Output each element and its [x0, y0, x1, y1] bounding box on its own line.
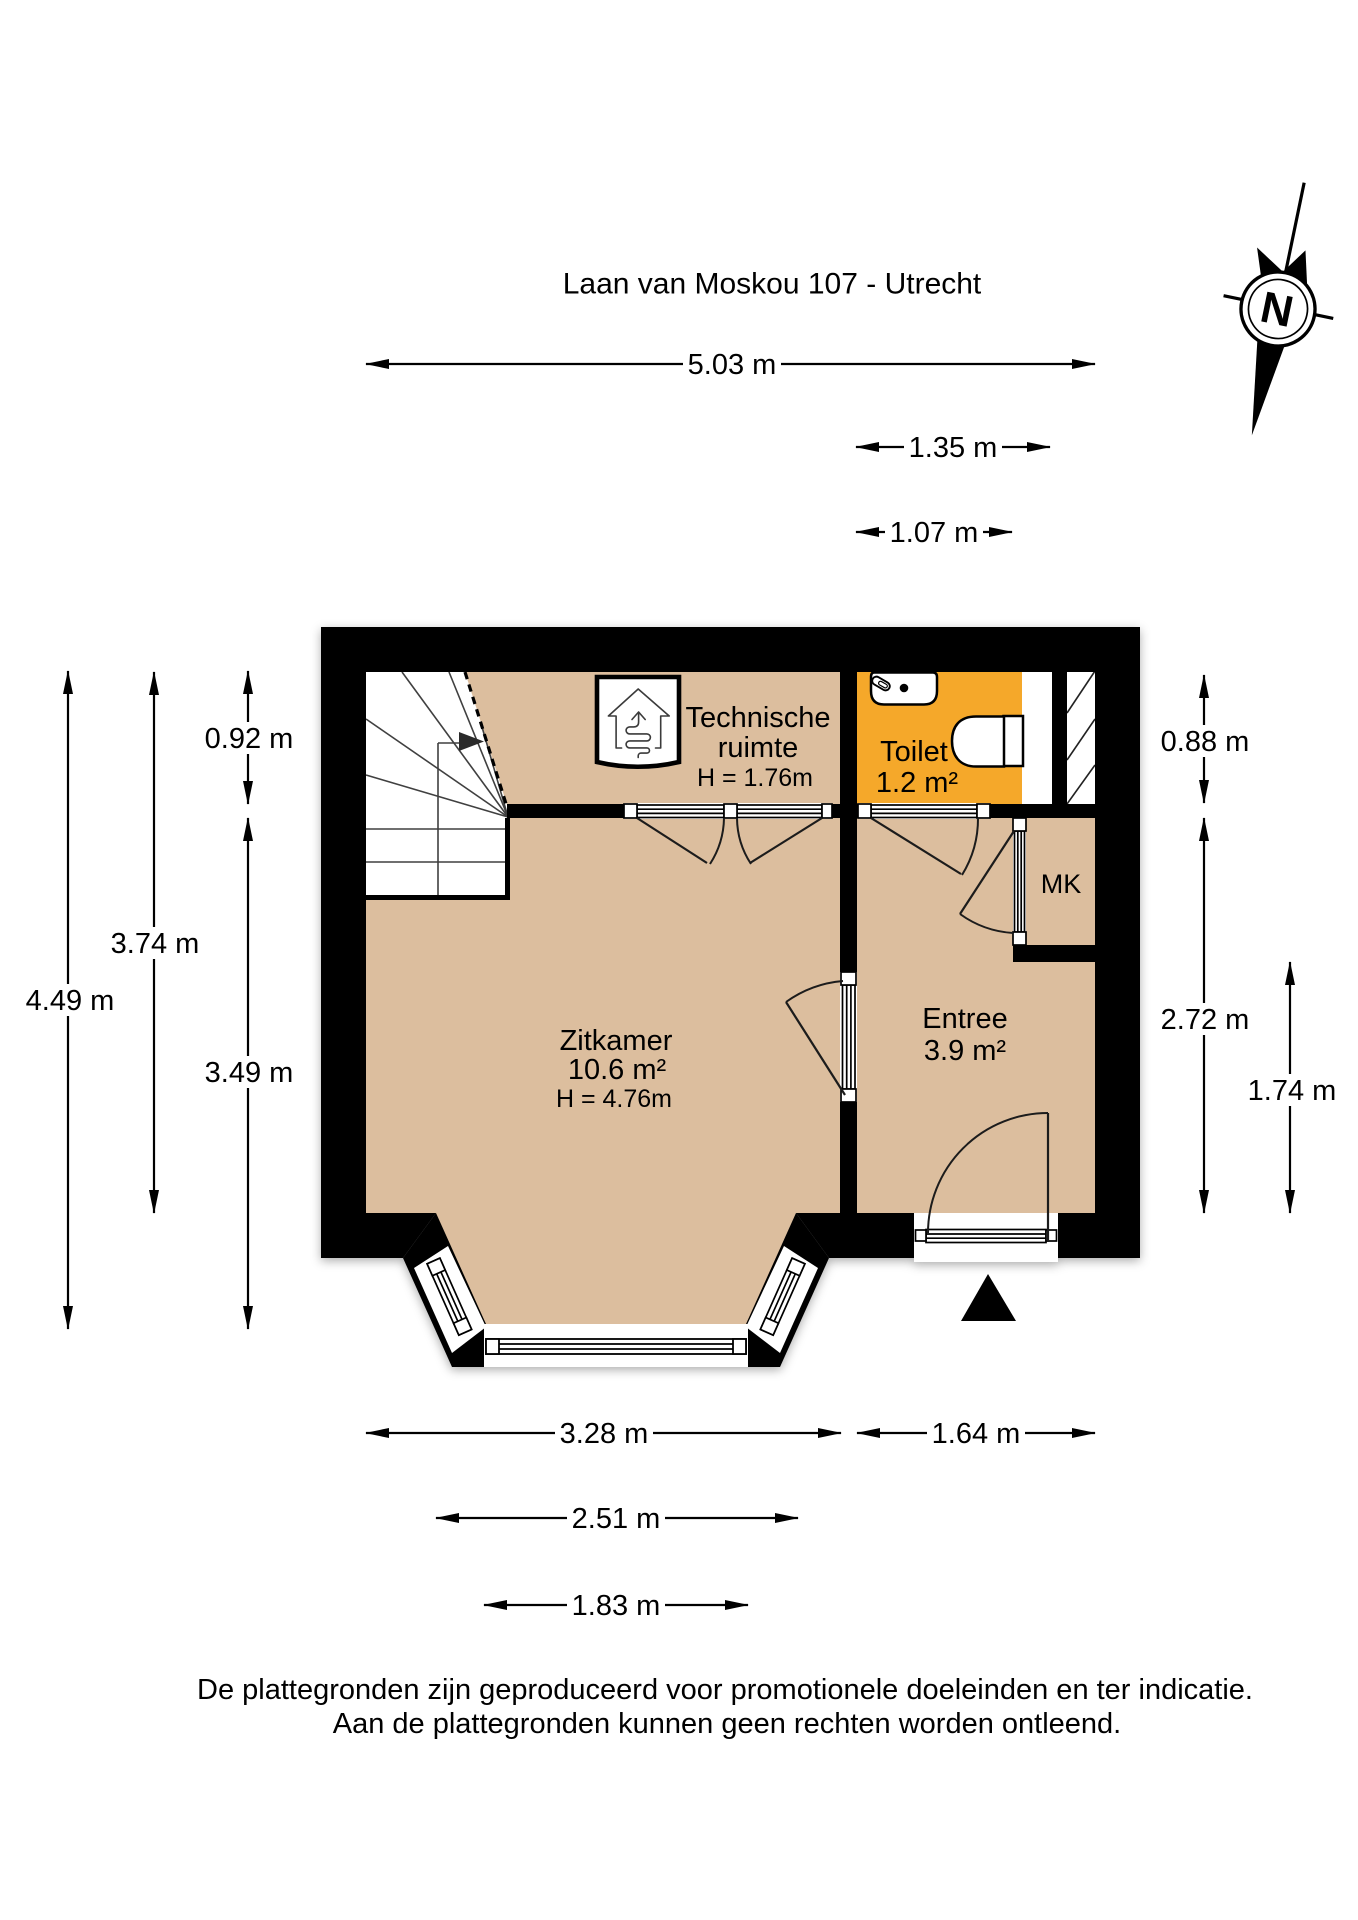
svg-text:Technische: Technische — [685, 702, 830, 734]
svg-text:MK: MK — [1041, 869, 1082, 899]
svg-text:Aan de plattegronden kunnen ge: Aan de plattegronden kunnen geen rechten… — [333, 1708, 1121, 1740]
svg-text:H = 4.76m: H = 4.76m — [556, 1085, 672, 1113]
svg-text:5.03 m: 5.03 m — [688, 349, 777, 381]
svg-text:3.49 m: 3.49 m — [205, 1057, 294, 1089]
svg-text:1.64 m: 1.64 m — [932, 1418, 1021, 1450]
svg-text:2.72 m: 2.72 m — [1161, 1004, 1250, 1036]
svg-text:Entree: Entree — [922, 1003, 1007, 1035]
svg-text:ruimte: ruimte — [718, 732, 799, 764]
svg-text:10.6 m²: 10.6 m² — [568, 1054, 667, 1086]
svg-text:3.9 m²: 3.9 m² — [924, 1035, 1007, 1067]
svg-text:0.92 m: 0.92 m — [205, 723, 294, 755]
svg-text:1.74 m: 1.74 m — [1248, 1075, 1337, 1107]
svg-text:H = 1.76m: H = 1.76m — [697, 764, 813, 792]
svg-text:Zitkamer: Zitkamer — [560, 1025, 673, 1057]
svg-text:4.49 m: 4.49 m — [26, 985, 115, 1017]
svg-text:3.74 m: 3.74 m — [111, 928, 200, 960]
svg-text:Toilet: Toilet — [880, 736, 948, 768]
svg-text:3.28 m: 3.28 m — [560, 1418, 649, 1450]
svg-text:1.2 m²: 1.2 m² — [876, 767, 959, 799]
svg-text:1.35 m: 1.35 m — [909, 432, 998, 464]
svg-text:Laan van Moskou 107 - Utrecht: Laan van Moskou 107 - Utrecht — [563, 268, 982, 301]
svg-text:0.88 m: 0.88 m — [1161, 726, 1250, 758]
svg-text:De plattegronden zijn geproduc: De plattegronden zijn geproduceerd voor … — [197, 1674, 1253, 1706]
svg-text:1.07 m: 1.07 m — [890, 517, 979, 549]
svg-text:1.83 m: 1.83 m — [572, 1590, 661, 1622]
svg-text:2.51 m: 2.51 m — [572, 1503, 661, 1535]
